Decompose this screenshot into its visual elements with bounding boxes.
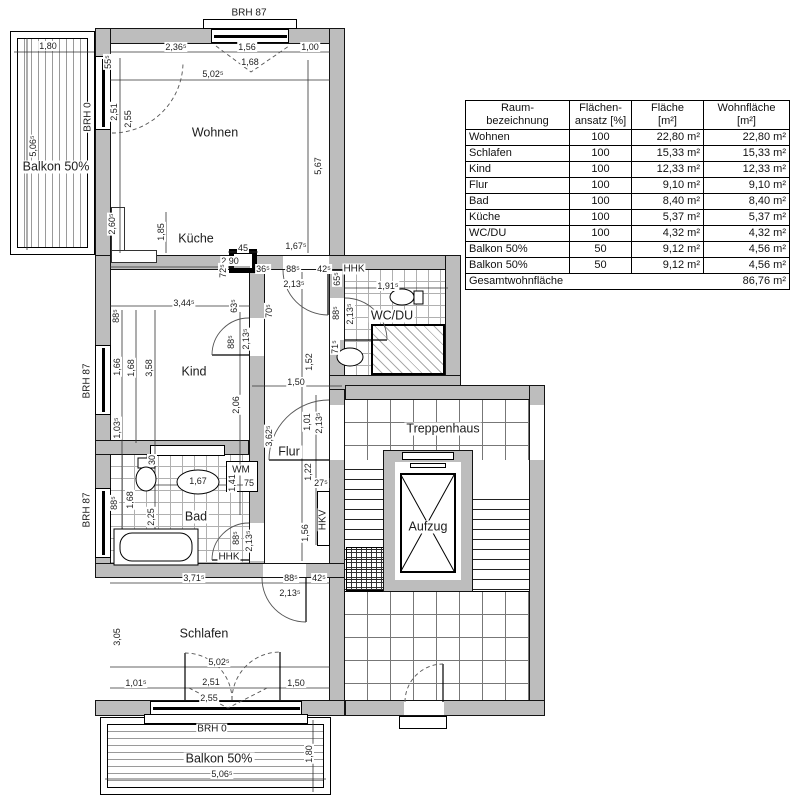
- door-opening: [330, 405, 344, 460]
- dimension-label: 45: [237, 243, 249, 253]
- dimension-label: 88⁵: [226, 334, 236, 350]
- dimension-label: 1,01⁵: [124, 678, 147, 688]
- dimension-label: 1,67⁵: [284, 241, 307, 251]
- table-cell: 15,33 m²: [704, 146, 790, 162]
- wall-segment: [345, 700, 545, 716]
- wall-segment: [329, 28, 345, 270]
- table-footer-row: Gesamtwohnfläche 86,76 m²: [466, 274, 790, 290]
- dimension-label: 2,36⁵: [164, 42, 187, 52]
- table-cell: 9,12 m²: [632, 242, 704, 258]
- dimension-label: 27⁵: [313, 478, 329, 488]
- table-row: Balkon 50%509,12 m²4,56 m²: [466, 258, 790, 274]
- table-row: Wohnen10022,80 m²22,80 m²: [466, 130, 790, 146]
- dimension-label: 2,55: [123, 109, 133, 129]
- room-label-balkon-bottom: Balkon 50%: [184, 753, 255, 766]
- bathroom-shelf: [150, 445, 225, 456]
- dimension-label: 88⁵: [283, 573, 299, 583]
- table-row: Flur1009,10 m²9,10 m²: [466, 178, 790, 194]
- dimension-label: 2,51: [109, 102, 119, 122]
- dimension-label: 1,50: [286, 678, 306, 688]
- window-opening: [530, 405, 544, 460]
- exit-door-leaf-panel: [399, 716, 447, 729]
- table-cell: 8,40 m²: [632, 194, 704, 210]
- table-cell: 12,33 m²: [632, 162, 704, 178]
- table-cell: 4,56 m²: [704, 258, 790, 274]
- wall-segment: [95, 563, 345, 578]
- dimension-label: 2,51: [201, 677, 221, 687]
- table-cell: 4,56 m²: [704, 242, 790, 258]
- table-cell: 100: [570, 194, 632, 210]
- dimension-label: 1,50: [286, 377, 306, 387]
- dimension-label: 75: [243, 478, 255, 488]
- dimension-label: 2,13⁵: [241, 327, 251, 350]
- dimension-label: 1,00: [300, 42, 320, 52]
- dimension-label: 63⁵: [229, 298, 239, 314]
- dimension-label: 42⁵: [311, 573, 327, 583]
- window-bottom: [150, 701, 302, 715]
- table-cell: 4,32 m²: [632, 226, 704, 242]
- dimension-label: 2,55: [199, 693, 219, 703]
- room-label-bad: Bad: [183, 511, 209, 524]
- shower: [371, 324, 445, 375]
- dimension-label: 1,67: [188, 476, 208, 486]
- dimension-label: 36⁵: [255, 264, 271, 274]
- wall-segment: [445, 255, 461, 390]
- table-row: Bad1008,40 m²8,40 m²: [466, 194, 790, 210]
- table-cell: Kind: [466, 162, 570, 178]
- total-area-cell: Gesamtwohnfläche 86,76 m²: [466, 274, 790, 290]
- dimension-label: 1,85: [156, 222, 166, 242]
- door-opening: [404, 701, 444, 715]
- table-cell: Flur: [466, 178, 570, 194]
- table-cell: 9,10 m²: [632, 178, 704, 194]
- dimension-label: 70⁵: [264, 303, 274, 319]
- room-label-flur: Flur: [276, 446, 302, 459]
- kitchen-counter: [111, 250, 157, 263]
- table-row: Balkon 50%509,12 m²4,56 m²: [466, 242, 790, 258]
- room-label-schlafen: Schlafen: [178, 628, 231, 641]
- dimension-label: 2,13⁵: [345, 302, 355, 325]
- table-cell: 5,37 m²: [704, 210, 790, 226]
- dimension-label: 1,52: [304, 352, 314, 372]
- table-cell: 9,10 m²: [704, 178, 790, 194]
- table-row: WC/DU1004,32 m²4,32 m²: [466, 226, 790, 242]
- table-cell: 100: [570, 162, 632, 178]
- stairs-right-flight: [473, 490, 529, 592]
- annotation-brh87-left-2: BRH 87: [82, 491, 93, 528]
- table-cell: Balkon 50%: [466, 258, 570, 274]
- dimension-label: 2,06: [231, 395, 241, 415]
- dimension-label: 2,60⁵: [107, 212, 117, 235]
- dimension-label: 3,62⁵: [264, 424, 274, 447]
- dimension-label: 3,05: [112, 627, 122, 647]
- table-cell: 4,32 m²: [704, 226, 790, 242]
- dimension-label: 88⁵: [109, 495, 119, 511]
- col-header-flaechenansatz: Flächen-ansatz [%]: [570, 101, 632, 130]
- table-cell: 50: [570, 242, 632, 258]
- table-row: Kind10012,33 m²12,33 m²: [466, 162, 790, 178]
- room-label-kueche: Küche: [176, 233, 215, 246]
- dimension-label: 88⁵: [285, 264, 301, 274]
- col-header-flaeche: Fläche[m²]: [632, 101, 704, 130]
- dimension-label: 30: [147, 454, 157, 466]
- dimension-label: 1,22: [303, 462, 313, 482]
- table-cell: 100: [570, 210, 632, 226]
- annotation-hhk-bad: HHK: [217, 552, 240, 563]
- table-cell: WC/DU: [466, 226, 570, 242]
- dimension-label: 1,68: [126, 358, 136, 378]
- dimension-label: 55⁵: [103, 54, 113, 70]
- dimension-label: 2,13⁵: [282, 279, 305, 289]
- table-cell: 50: [570, 258, 632, 274]
- table-cell: 100: [570, 146, 632, 162]
- dimension-label: 1,01: [302, 412, 312, 432]
- dimension-label: 5,02⁵: [207, 657, 230, 667]
- table-cell: 22,80 m²: [704, 130, 790, 146]
- dimension-label: 88⁵: [331, 305, 341, 321]
- room-label-treppenhaus: Treppenhaus: [404, 423, 481, 436]
- landing-tiles: [345, 592, 529, 700]
- table-cell: 15,33 m²: [632, 146, 704, 162]
- total-area-label: Gesamtwohnfläche: [469, 275, 563, 288]
- table-cell: 22,80 m²: [632, 130, 704, 146]
- dimension-label: 1,91⁵: [376, 281, 399, 291]
- dimension-label: 3,44⁵: [172, 298, 195, 308]
- window-kind: [95, 345, 111, 415]
- table-row: Küche1005,37 m²5,37 m²: [466, 210, 790, 226]
- dimension-label: 1,56: [300, 523, 310, 543]
- dimension-label: 1,68: [240, 57, 260, 67]
- table-cell: 5,37 m²: [632, 210, 704, 226]
- table-cell: 9,12 m²: [632, 258, 704, 274]
- elevator-door: [402, 452, 454, 460]
- dimension-label: 1,03⁵: [112, 416, 122, 439]
- dimension-label: 5,02⁵: [201, 69, 224, 79]
- dimension-label: 88⁵: [231, 530, 241, 546]
- annotation-brh0-bottom: BRH 0: [196, 724, 227, 735]
- annotation-brh87-top: BRH 87: [230, 8, 267, 19]
- area-table: Raum-bezeichnung Flächen-ansatz [%] Fläc…: [465, 100, 790, 290]
- table-cell: 100: [570, 130, 632, 146]
- stairs-right-landing: [473, 460, 529, 490]
- table-header-row: Raum-bezeichnung Flächen-ansatz [%] Fläc…: [466, 101, 790, 130]
- elevator-door-inner: [410, 463, 446, 468]
- table-cell: Wohnen: [466, 130, 570, 146]
- table-cell: Küche: [466, 210, 570, 226]
- table-cell: Bad: [466, 194, 570, 210]
- col-header-wohnflaeche: Wohnfläche[m²]: [704, 101, 790, 130]
- dimension-label: 88⁵: [111, 308, 121, 324]
- dimension-label: 65⁵: [332, 271, 342, 287]
- stairs-hatched-area: [346, 547, 384, 591]
- annotation-brh87-left-1: BRH 87: [82, 362, 93, 399]
- dimension-label: 2,13⁵: [244, 529, 254, 552]
- annotation-hkv: HKV: [318, 509, 329, 532]
- table-cell: 100: [570, 226, 632, 242]
- col-header-raumbezeichnung: Raum-bezeichnung: [466, 101, 570, 130]
- window-top: [211, 29, 289, 43]
- dimension-label: 2,25: [146, 507, 156, 527]
- table-cell: 8,40 m²: [704, 194, 790, 210]
- dimension-label: 1,41: [227, 473, 237, 493]
- dimension-label: 5,67: [313, 156, 323, 176]
- annotation-brh0-left: BRH 0: [83, 101, 94, 132]
- dimension-label: 3,58: [144, 358, 154, 378]
- dimension-label: 71⁵: [330, 339, 340, 355]
- dimension-label: 5,06⁵: [210, 769, 233, 779]
- table-cell: Balkon 50%: [466, 242, 570, 258]
- dimension-label: 42⁵: [316, 264, 332, 274]
- door-opening: [250, 318, 264, 356]
- table-cell: 12,33 m²: [704, 162, 790, 178]
- room-label-wcdu: WC/DU: [369, 310, 415, 323]
- wall-segment: [345, 385, 545, 400]
- dimension-label: 1,80: [304, 744, 314, 764]
- dimension-label: 1,66: [112, 357, 122, 377]
- dimension-label: 1,68: [125, 490, 135, 510]
- room-label-kind: Kind: [179, 366, 208, 379]
- dimension-label: 3,71⁵: [182, 573, 205, 583]
- table-cell: Schlafen: [466, 146, 570, 162]
- dimension-label: 1,56: [237, 42, 257, 52]
- room-label-aufzug: Aufzug: [407, 521, 450, 534]
- table-cell: 100: [570, 178, 632, 194]
- dimension-label: 5,06⁵: [28, 134, 38, 157]
- dimension-label: 1,80: [38, 41, 58, 51]
- room-label-balkon-left: Balkon 50%: [21, 161, 92, 174]
- dimension-label: 2,13⁵: [278, 588, 301, 598]
- dimension-label: 72⁵: [218, 263, 228, 279]
- room-label-wohnen: Wohnen: [190, 127, 240, 140]
- window-sill-top: [203, 19, 297, 29]
- annotation-hhk-wc: HHK: [342, 264, 365, 275]
- floor-plan-canvas: WohnenKücheKindFlurBadSchlafenWC/DUTrepp…: [0, 0, 793, 804]
- window-sill-bottom: [144, 714, 308, 724]
- table-row: Schlafen10015,33 m²15,33 m²: [466, 146, 790, 162]
- dimension-label: 2,13⁵: [314, 411, 324, 434]
- total-area-value: 86,76 m²: [743, 275, 786, 288]
